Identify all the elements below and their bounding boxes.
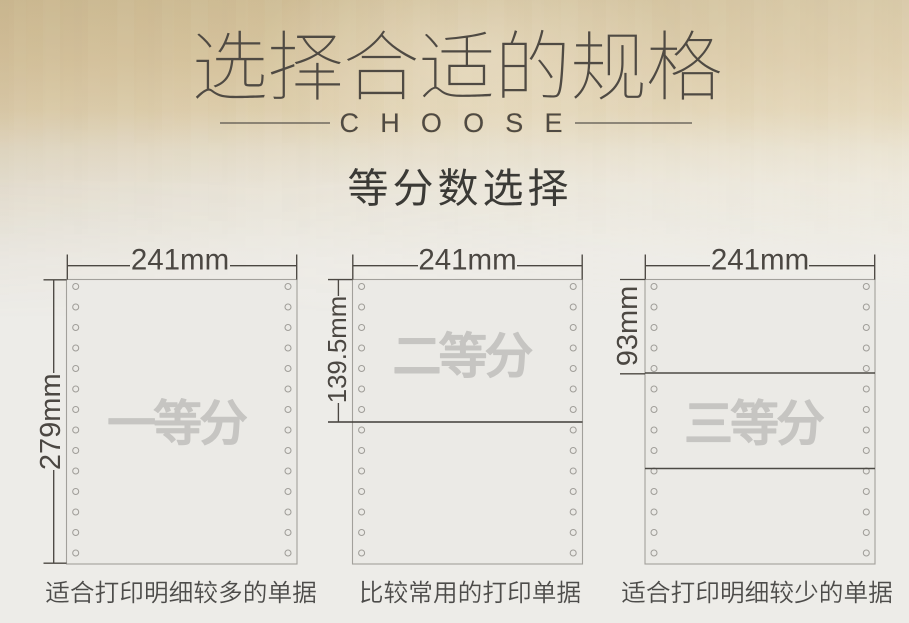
svg-text:241mm: 241mm (418, 244, 516, 277)
svg-text:241mm: 241mm (131, 244, 229, 277)
svg-text:93mm: 93mm (612, 286, 644, 367)
svg-text:279mm: 279mm (35, 373, 67, 470)
svg-text:241mm: 241mm (711, 244, 809, 277)
svg-text:139.5mm: 139.5mm (324, 296, 352, 404)
svg-text:CHOOSE: CHOOSE (340, 108, 584, 138)
